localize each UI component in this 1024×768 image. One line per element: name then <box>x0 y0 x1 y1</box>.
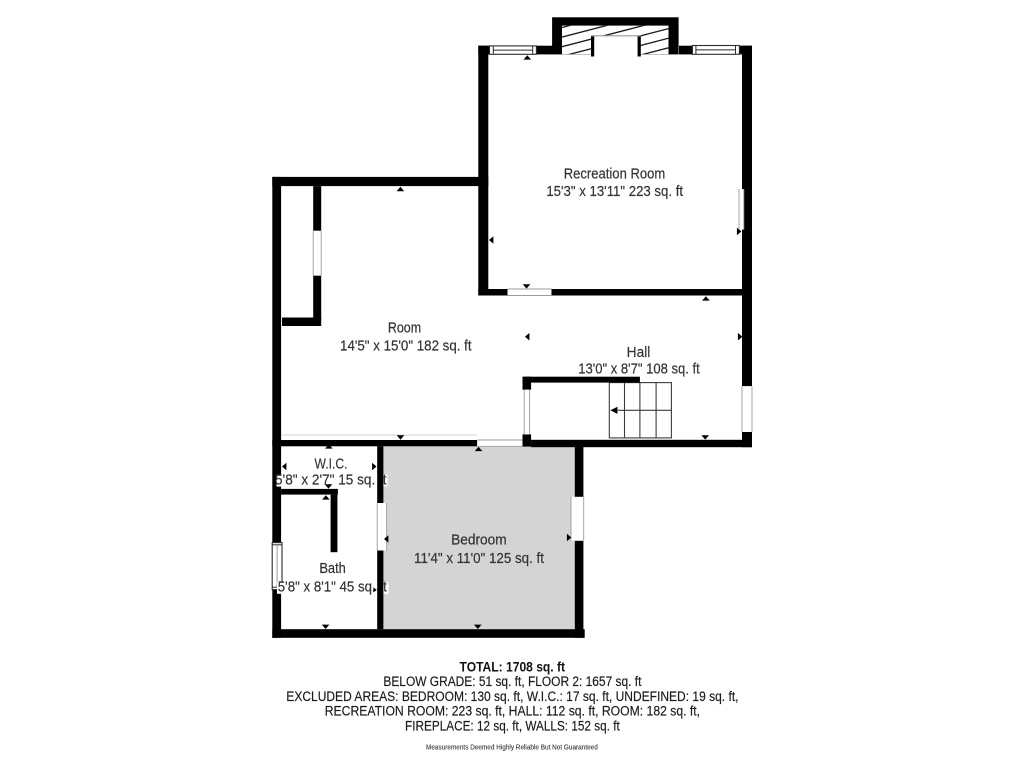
svg-text:5'8" x 2'7" 15 sq. ft: 5'8" x 2'7" 15 sq. ft <box>275 472 387 488</box>
svg-text:W.I.C.: W.I.C. <box>315 457 348 473</box>
svg-text:Bath: Bath <box>319 561 346 577</box>
svg-text:Recreation Room: Recreation Room <box>564 167 666 183</box>
svg-text:13'0" x 8'7" 108 sq. ft: 13'0" x 8'7" 108 sq. ft <box>578 362 700 378</box>
svg-text:EXCLUDED AREAS: BEDROOM: 130 s: EXCLUDED AREAS: BEDROOM: 130 sq. ft, W.I… <box>286 689 738 705</box>
svg-text:14'5" x 15'0" 182 sq. ft: 14'5" x 15'0" 182 sq. ft <box>340 338 472 354</box>
svg-text:Room: Room <box>388 321 421 337</box>
svg-text:BELOW GRADE: 51 sq. ft, FLOOR: BELOW GRADE: 51 sq. ft, FLOOR 2: 1657 sq… <box>383 674 641 690</box>
svg-text:Measurements Deemed Highly Rel: Measurements Deemed Highly Reliable But … <box>426 743 598 752</box>
svg-text:Bedroom: Bedroom <box>451 532 507 548</box>
svg-text:RECREATION ROOM: 223 sq. ft, H: RECREATION ROOM: 223 sq. ft, HALL: 112 s… <box>325 704 700 720</box>
svg-text:TOTAL: 1708 sq. ft: TOTAL: 1708 sq. ft <box>460 660 566 675</box>
svg-text:Hall: Hall <box>627 345 651 361</box>
svg-text:FIREPLACE: 12 sq. ft, WALLS: 1: FIREPLACE: 12 sq. ft, WALLS: 152 sq. ft <box>405 718 620 734</box>
svg-text:11'4" x 11'0" 125 sq. ft: 11'4" x 11'0" 125 sq. ft <box>414 551 544 567</box>
svg-text:15'3" x 13'11" 223 sq. ft: 15'3" x 13'11" 223 sq. ft <box>546 184 683 200</box>
svg-text:5'8" x 8'1" 45 sq. ft: 5'8" x 8'1" 45 sq. ft <box>278 580 387 596</box>
